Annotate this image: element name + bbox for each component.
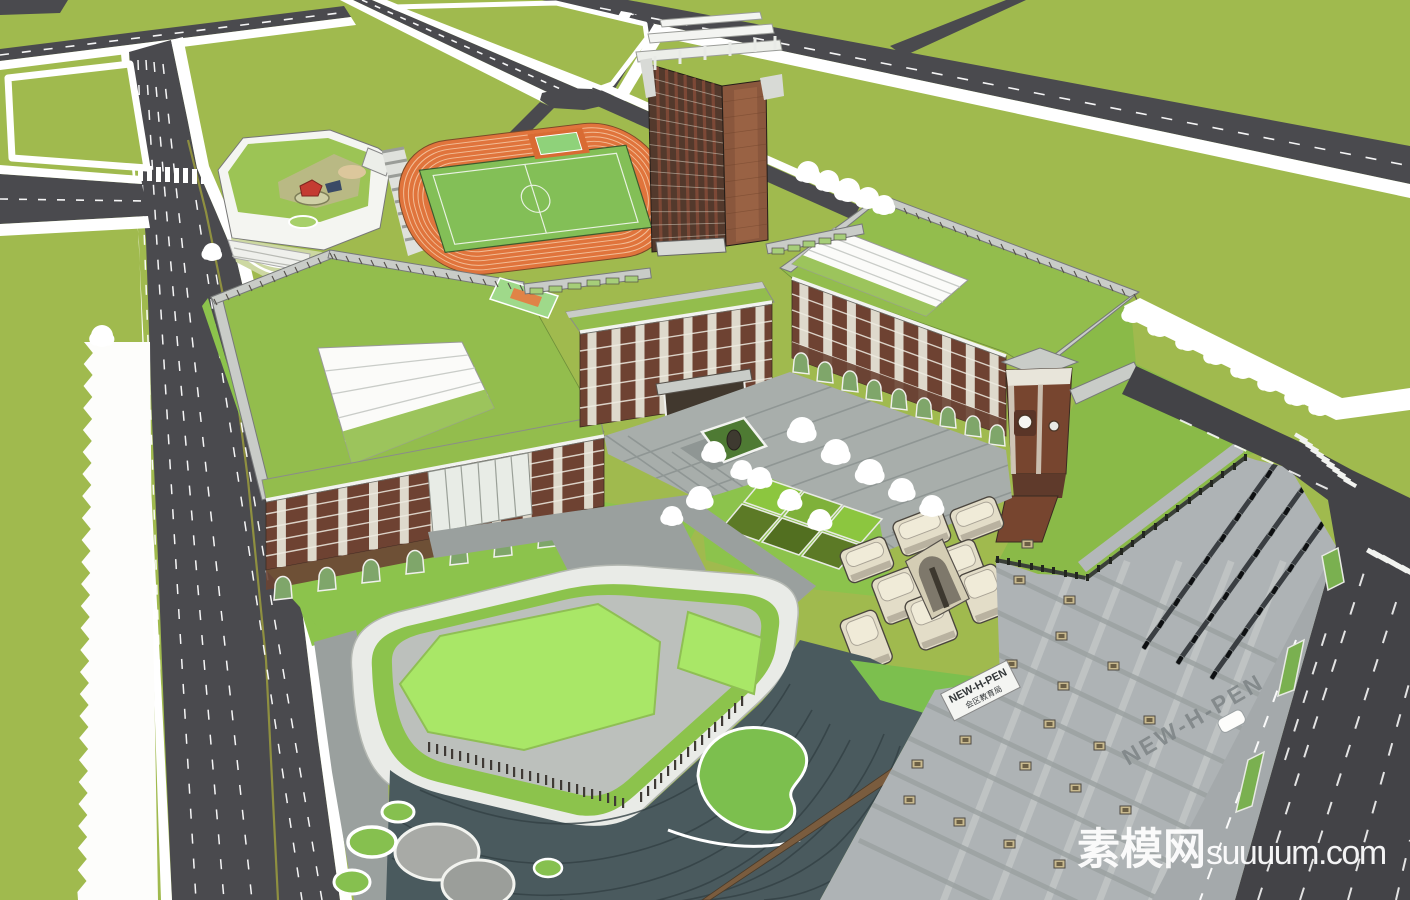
svg-text:素模网suuuum.com: 素模网suuuum.com — [1077, 826, 1386, 874]
